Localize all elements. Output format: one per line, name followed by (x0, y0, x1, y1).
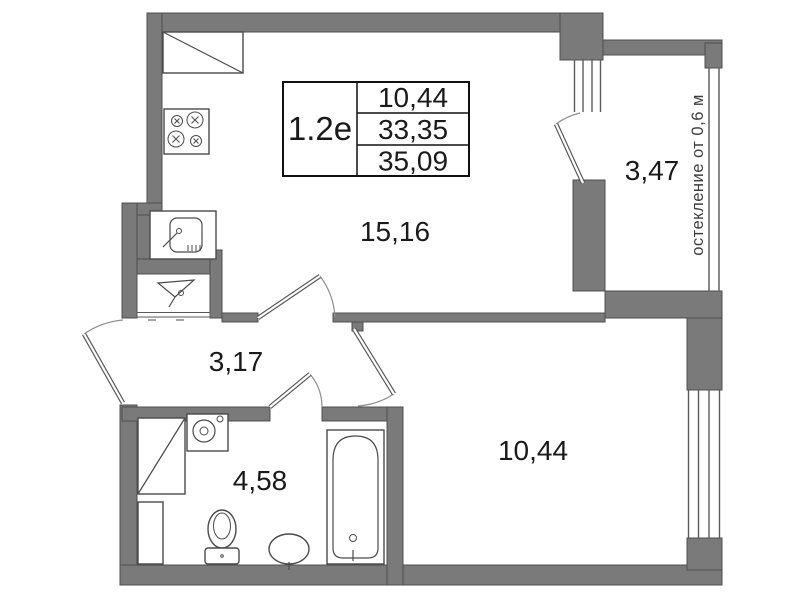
glazing-annotation: остекление от 0,6 м (689, 94, 707, 256)
vent-funnel-icon (158, 280, 194, 307)
floor-plan: 1.2е 10,44 33,35 35,09 15,16 3,47 3,17 4… (0, 0, 799, 600)
door-bathroom (270, 374, 322, 407)
unit-type-label: 1.2е (288, 110, 352, 147)
kitchen-sink-unit-icon (150, 211, 216, 259)
wall-bottom (120, 565, 722, 585)
wall-right-lower-block (687, 538, 722, 570)
wall-bathroom-right (387, 407, 403, 585)
wall-living-bedroom (333, 313, 605, 322)
wall-left-mid (122, 203, 137, 318)
wall-nook-right (210, 250, 222, 318)
room-label-balcony: 3,47 (625, 155, 680, 186)
shower-cabinet-icon (138, 418, 185, 494)
nook-threshold (137, 313, 210, 321)
wall-bedroom-balcony (605, 291, 722, 318)
duct-icon (138, 502, 163, 564)
toilet-icon (205, 510, 239, 564)
wall-top-right-corner (560, 13, 603, 60)
kitchen-counter-icon (163, 32, 243, 73)
door-living-room (258, 276, 335, 318)
wall-balcony-separator (573, 180, 605, 291)
wall-balcony-top (603, 40, 722, 55)
area-value-living: 10,44 (378, 82, 448, 113)
room-label-bathroom: 4,58 (233, 465, 288, 496)
wall-right-mid (687, 318, 722, 390)
wall-nook-lower (137, 259, 219, 274)
room-label-hallway: 3,17 (209, 346, 264, 377)
wall-left-upper (147, 13, 162, 205)
area-value-total: 33,35 (378, 114, 448, 145)
floor-plan-svg: 1.2е 10,44 33,35 35,09 15,16 3,47 3,17 4… (0, 0, 799, 600)
door-balcony (556, 113, 583, 183)
stove-icon (164, 109, 209, 154)
window-living-balcony (575, 60, 601, 112)
wall-left-lower (120, 405, 137, 585)
info-table: 1.2е 10,44 33,35 35,09 (283, 82, 469, 177)
bathtub-icon (327, 430, 384, 564)
wall-balcony-corner-post (705, 43, 722, 68)
window-bedroom (689, 390, 720, 538)
wall-top (147, 13, 603, 32)
door-bedroom (354, 329, 394, 406)
room-label-bedroom: 10,44 (498, 435, 568, 466)
wall-living-door-jamb (222, 313, 258, 322)
area-value-total-balcony: 35,09 (378, 146, 448, 177)
room-label-kitchen-living: 15,16 (360, 216, 430, 247)
washing-machine-icon (187, 414, 228, 451)
balcony-glazing-line (709, 68, 719, 291)
door-entrance (84, 320, 123, 403)
